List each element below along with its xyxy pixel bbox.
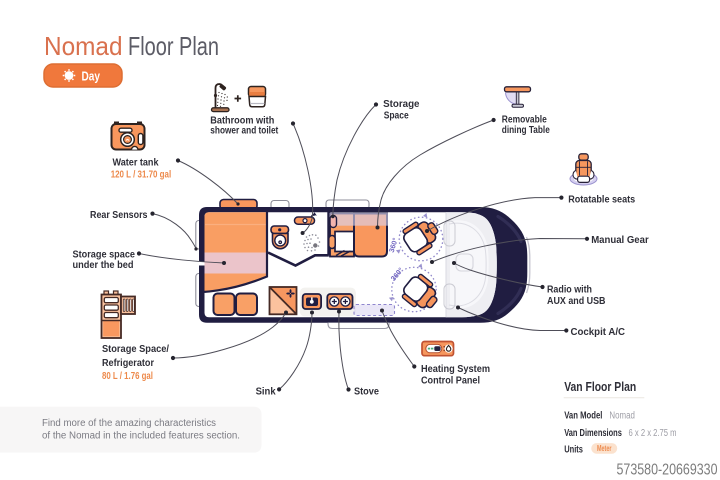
svg-text:Day: Day	[82, 69, 101, 83]
svg-text:Floor Plan: Floor Plan	[128, 31, 219, 61]
svg-text:Manual Gear: Manual Gear	[591, 235, 649, 246]
svg-text:Rotatable seats: Rotatable seats	[568, 194, 635, 205]
svg-text:Find more of the amazing chara: Find more of the amazing characteristics	[42, 418, 216, 429]
svg-text:Meter: Meter	[597, 444, 612, 453]
svg-text:Heating System: Heating System	[421, 364, 490, 375]
svg-text:shower and toilet: shower and toilet	[210, 126, 278, 137]
svg-text:120 L / 31.70 gal: 120 L / 31.70 gal	[111, 170, 172, 181]
svg-text:Water tank: Water tank	[113, 157, 159, 168]
svg-text:Control Panel: Control Panel	[421, 375, 480, 386]
svg-text:Stove: Stove	[354, 387, 379, 398]
svg-text:Storage Space/: Storage Space/	[102, 344, 169, 355]
svg-text:Units: Units	[564, 445, 583, 456]
svg-text:Cockpit A/C: Cockpit A/C	[571, 327, 626, 338]
svg-text:Storage: Storage	[383, 99, 420, 110]
svg-text:Van Dimensions: Van Dimensions	[564, 428, 622, 439]
svg-text:Space: Space	[384, 111, 409, 122]
svg-text:dining Table: dining Table	[502, 125, 550, 136]
svg-text:of the Nomad in the included f: of the Nomad in the included features se…	[42, 430, 240, 441]
svg-text:Refrigerator: Refrigerator	[102, 358, 154, 369]
svg-text:Sink: Sink	[256, 387, 276, 398]
svg-text:Radio with: Radio with	[547, 285, 592, 296]
svg-text:under the bed: under the bed	[73, 260, 134, 271]
svg-text:6 x 2 x 2.75 m: 6 x 2 x 2.75 m	[629, 428, 677, 439]
svg-text:80 L / 1.76 gal: 80 L / 1.76 gal	[102, 371, 153, 382]
svg-text:573580-20669330: 573580-20669330	[617, 462, 718, 479]
svg-text:Rear Sensors: Rear Sensors	[90, 210, 148, 221]
svg-text:AUX and USB: AUX and USB	[547, 296, 606, 307]
svg-text:Nomad: Nomad	[609, 410, 635, 421]
svg-text:Van Floor Plan: Van Floor Plan	[564, 379, 636, 394]
svg-text:Van Model: Van Model	[564, 410, 602, 421]
svg-text:Nomad: Nomad	[44, 31, 123, 61]
